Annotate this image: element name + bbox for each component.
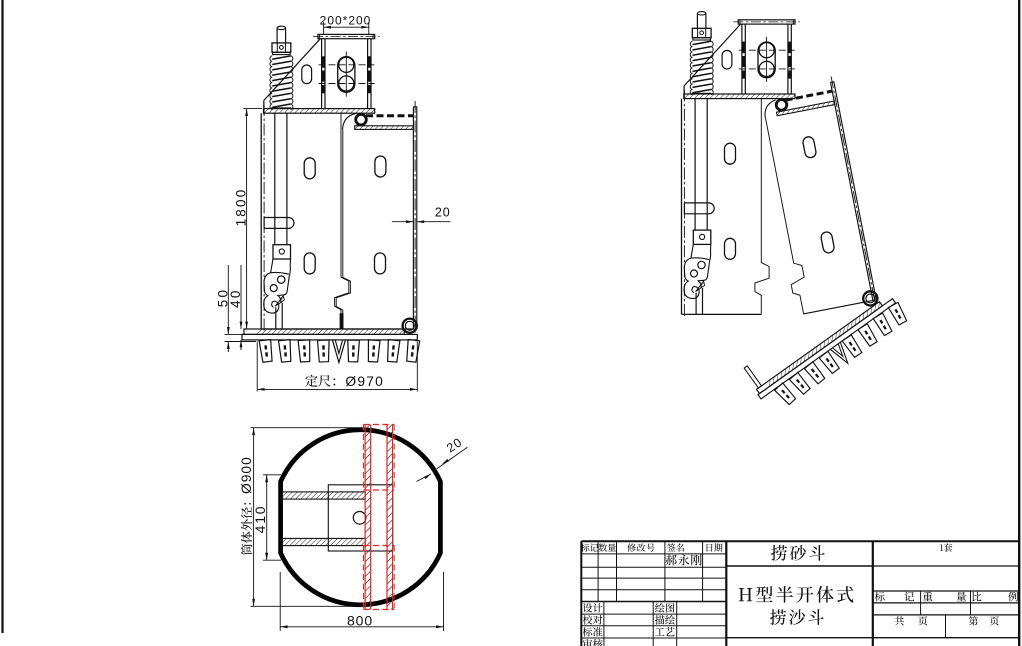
svg-text:410: 410 [252, 505, 268, 534]
svg-text:Ø970: Ø970 [345, 374, 384, 389]
svg-text:1800: 1800 [233, 188, 248, 227]
svg-text:Ø900: Ø900 [239, 456, 254, 494]
svg-text:800: 800 [347, 613, 373, 629]
svg-text:20: 20 [435, 205, 451, 219]
svg-text:200*200: 200*200 [320, 14, 372, 28]
